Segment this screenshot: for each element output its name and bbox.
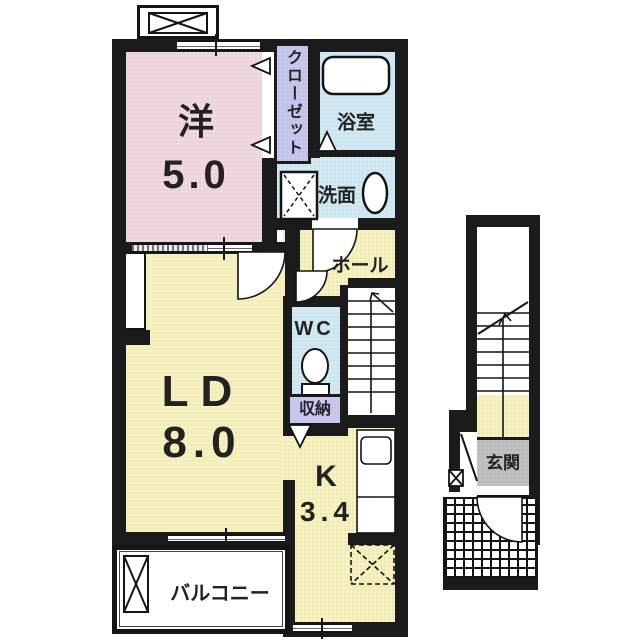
washing-machine-area-icon bbox=[281, 172, 317, 219]
label-living-area: 8.0 bbox=[162, 421, 241, 465]
label-balcony: バルコニー bbox=[170, 584, 270, 604]
label-hall: ホール bbox=[331, 257, 388, 276]
refrigerator-area-icon bbox=[351, 545, 394, 584]
label-living: LD bbox=[162, 370, 245, 414]
door-arc-icon bbox=[296, 271, 327, 302]
kitchen-sink-icon bbox=[361, 437, 391, 464]
label-western-area: 5.0 bbox=[162, 155, 230, 195]
label-storage: 収納 bbox=[299, 402, 331, 418]
stairs-icon bbox=[348, 293, 395, 413]
floor-plan: 洋 5.0 クローゼット 浴室 洗面 ホール WC 収納 LD 8.0 K 3.… bbox=[0, 0, 640, 640]
label-entrance: 玄関 bbox=[486, 455, 520, 472]
door-arc-icon bbox=[477, 497, 522, 542]
label-kitchen-area: 3.4 bbox=[300, 498, 354, 526]
label-washroom: 洗面 bbox=[318, 187, 356, 206]
label-bath: 浴室 bbox=[337, 114, 375, 133]
balcony-unit-icon bbox=[124, 556, 148, 612]
label-kitchen: K bbox=[315, 462, 337, 492]
outdoor-unit-icon bbox=[149, 13, 207, 33]
bathtub-icon bbox=[323, 57, 389, 94]
toilet-icon bbox=[302, 349, 329, 395]
stairs-icon bbox=[477, 302, 529, 437]
kitchen-counter-icon bbox=[357, 430, 395, 533]
door-arc-icon bbox=[238, 252, 285, 299]
storage-door-icon bbox=[289, 425, 311, 447]
bath-door-icon bbox=[318, 132, 336, 151]
label-closet: クローゼット bbox=[284, 49, 300, 157]
label-western-room: 洋 bbox=[178, 104, 214, 140]
label-wc: WC bbox=[294, 319, 333, 339]
entrance-meter-icon bbox=[449, 470, 463, 486]
sink-oval-icon bbox=[363, 173, 387, 213]
closet-door-icon bbox=[252, 58, 270, 153]
